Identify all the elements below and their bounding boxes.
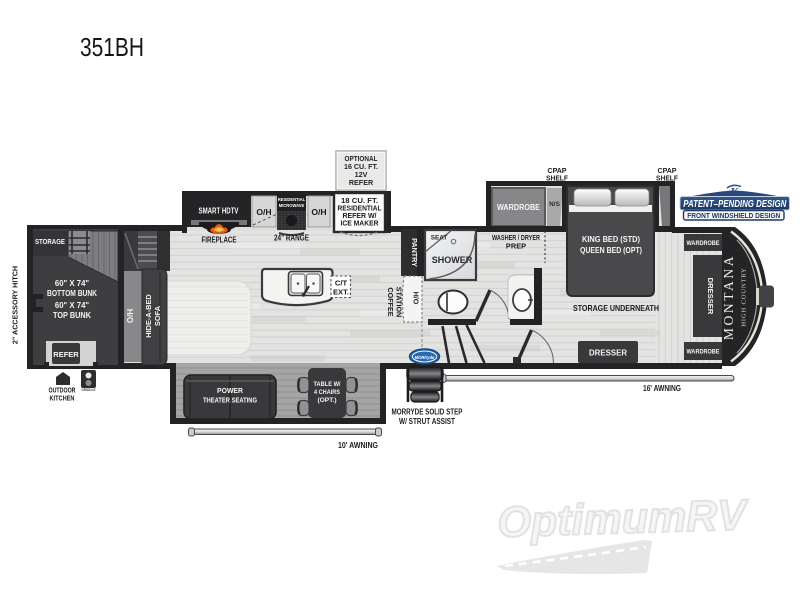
svg-text:THEATER SEATING: THEATER SEATING [203,396,257,405]
svg-text:HIDE-A-BED: HIDE-A-BED [144,294,153,338]
svg-text:STATION: STATION [395,287,404,317]
svg-text:STORAGE UNDERNEATH: STORAGE UNDERNEATH [573,304,659,313]
svg-text:PATENT–PENDING DESIGN: PATENT–PENDING DESIGN [683,199,786,210]
svg-text:FIREPLACE: FIREPLACE [202,236,237,245]
svg-text:H/O: H/O [412,292,421,305]
svg-text:18 CU. FT.: 18 CU. FT. [341,198,378,205]
svg-text:MOR/ryde: MOR/ryde [415,355,435,360]
svg-text:10' AWNING: 10' AWNING [338,441,378,450]
svg-text:GRIDDLE: GRIDDLE [81,388,95,392]
svg-text:EXT.: EXT. [333,288,349,297]
svg-text:N/S: N/S [549,201,560,208]
svg-text:BOTTOM BUNK: BOTTOM BUNK [47,289,97,298]
svg-text:MICROWAVE: MICROWAVE [279,203,305,208]
svg-text:SHOWER: SHOWER [432,255,473,265]
svg-text:REFER: REFER [349,178,374,187]
svg-text:PREP: PREP [506,242,526,251]
svg-text:RESIDENTIAL: RESIDENTIAL [278,197,306,202]
svg-text:WARDROBE: WARDROBE [687,240,721,247]
svg-text:MONTANA: MONTANA [721,254,736,340]
svg-text:C/T: C/T [335,279,348,288]
svg-text:KITCHEN: KITCHEN [50,394,75,403]
svg-text:O/H: O/H [126,309,135,323]
svg-text:16' AWNING: 16' AWNING [643,384,681,393]
svg-text:SOFA: SOFA [153,305,162,326]
svg-text:RESIDENTIAL: RESIDENTIAL [338,206,383,213]
svg-text:REFER: REFER [53,350,79,359]
svg-text:ICE MAKER: ICE MAKER [341,221,379,228]
svg-text:SEAT: SEAT [431,235,448,242]
svg-text:(OPT.): (OPT.) [317,397,336,404]
svg-text:O/H: O/H [256,207,271,217]
svg-text:4 CHAIRS: 4 CHAIRS [314,389,341,396]
svg-text:DRESSER: DRESSER [706,278,715,315]
svg-text:STORAGE: STORAGE [35,237,65,246]
svg-text:SHELF: SHELF [546,174,569,183]
svg-text:TOP BUNK: TOP BUNK [53,311,91,320]
svg-text:QUEEN BED (OPT): QUEEN BED (OPT) [580,246,642,255]
svg-text:SMART HDTV: SMART HDTV [199,207,239,216]
svg-text:24" RANGE: 24" RANGE [274,234,309,243]
svg-text:OptimumRV: OptimumRV [497,491,750,547]
svg-text:2" ACCESSORY HITCH: 2" ACCESSORY HITCH [11,266,20,344]
svg-text:SHELF: SHELF [656,174,679,183]
svg-text:O/H: O/H [311,207,326,217]
svg-text:MORRYDE SOLID STEP: MORRYDE SOLID STEP [392,408,464,417]
svg-text:TABLE W/: TABLE W/ [314,381,341,388]
svg-text:COFFEE: COFFEE [386,287,395,316]
svg-text:HIGH COUNTRY: HIGH COUNTRY [741,267,748,326]
svg-text:60" X 74": 60" X 74" [55,301,90,310]
svg-text:WARDROBE: WARDROBE [687,349,721,356]
svg-text:351BH: 351BH [80,32,144,62]
svg-text:POWER: POWER [217,386,243,395]
svg-text:DRESSER: DRESSER [589,349,627,358]
svg-text:REFER W/: REFER W/ [343,213,377,220]
svg-text:WARDROBE: WARDROBE [497,203,540,212]
svg-text:60" X 74": 60" X 74" [55,279,90,288]
svg-text:KING BED (STD): KING BED (STD) [582,235,640,244]
svg-text:W/ STRUT ASSIST: W/ STRUT ASSIST [399,417,455,426]
svg-text:FRONT WINDSHIELD DESIGN: FRONT WINDSHIELD DESIGN [687,213,780,220]
